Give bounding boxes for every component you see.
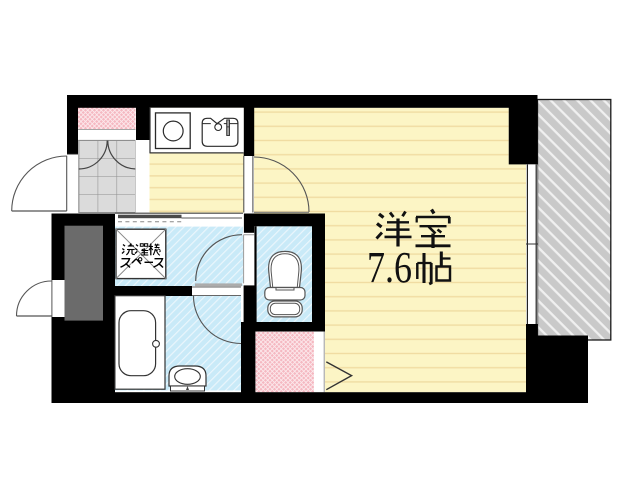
svg-text:7.6: 7.6 <box>367 243 412 292</box>
